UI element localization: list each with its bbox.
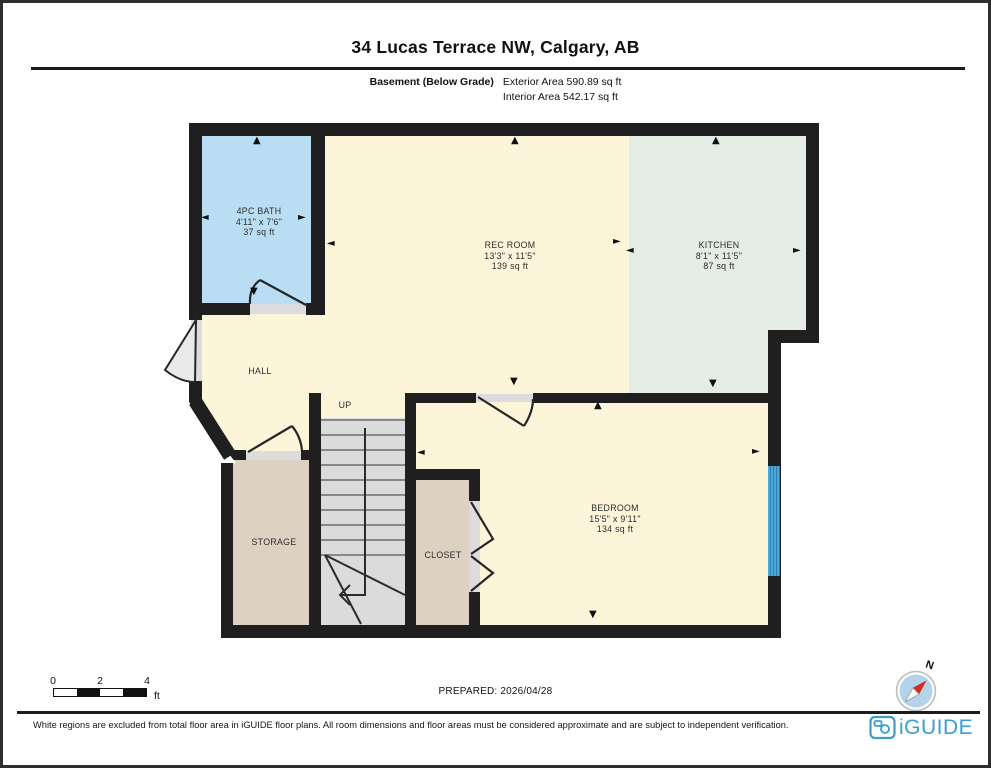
bedroom-name: BEDROOM [555, 503, 675, 514]
area-summary: Exterior Area 590.89 sq ft Interior Area… [503, 75, 621, 105]
rec-right-arrow-icon: ► [613, 237, 621, 247]
compass-rose: N [891, 655, 945, 715]
wall-left-stub [189, 381, 202, 407]
kitchen-bottom-arrow-icon: ▼ [709, 379, 717, 389]
stairs-fill [321, 418, 405, 625]
hall-label: HALL [220, 366, 300, 377]
floor-plan-page: 34 Lucas Terrace NW, Calgary, AB Basemen… [0, 0, 991, 768]
bedroom-area: 134 sq ft [555, 524, 675, 535]
kitchen-fill-lower [629, 332, 768, 395]
wall-closet-right-upper [469, 469, 480, 501]
hall-fill [202, 305, 325, 451]
wall-storage-left [221, 450, 233, 638]
bedroom-door-sill [476, 394, 533, 402]
bath-area: 37 sq ft [199, 227, 319, 238]
exterior-area: Exterior Area 590.89 sq ft [503, 75, 621, 90]
wall-storage-top-right [301, 450, 321, 460]
bedroom-window [768, 466, 780, 576]
footer-divider [17, 711, 980, 714]
iguide-logo-icon [869, 715, 896, 740]
wall-kitchen-right [806, 123, 819, 343]
compass-north-label: N [924, 659, 935, 673]
bedroom-dims: 15'5" x 9'11" [555, 514, 675, 525]
prepared-date: PREPARED: 2026/04/28 [3, 686, 988, 697]
rec-room-area: 139 sq ft [450, 261, 570, 272]
brand-logo: iGUIDE [869, 715, 973, 740]
footer-disclaimer: White regions are excluded from total fl… [33, 720, 823, 730]
up-label: UP [325, 400, 365, 411]
closet-opening-sill [469, 501, 480, 592]
wall-bath-bottom-right [306, 303, 325, 315]
wall-stair-left [309, 393, 321, 625]
wall-bottom [221, 625, 781, 638]
wall-bedroom-top-right [533, 393, 781, 403]
exterior-door-sill [191, 320, 202, 381]
floor-label: Basement (Below Grade) [370, 75, 494, 90]
bedroom-top-arrow-icon: ▲ [594, 401, 602, 411]
bath-left-arrow-icon: ◄ [201, 213, 209, 223]
wall-bedroom-top-left [410, 393, 476, 403]
kitchen-dims: 8'1" x 11'5" [659, 251, 779, 262]
brand-name: iGUIDE [899, 716, 973, 740]
rec-top-arrow-icon: ▲ [511, 136, 519, 146]
bath-door-arrow-icon: ▼ [250, 287, 258, 297]
closet-label: CLOSET [403, 550, 483, 561]
kitchen-name: KITCHEN [659, 240, 779, 251]
interior-area: Interior Area 542.17 sq ft [503, 90, 621, 105]
wall-stair-right [405, 393, 416, 625]
page-title: 34 Lucas Terrace NW, Calgary, AB [3, 37, 988, 58]
wall-closet-right-lower [469, 592, 480, 638]
wall-top [189, 123, 819, 136]
bedroom-left-arrow-icon: ◄ [417, 448, 425, 458]
bath-top-arrow-icon: ▲ [253, 136, 261, 146]
bedroom-right-arrow-icon: ► [752, 447, 760, 457]
rec-room-label: REC ROOM 13'3" x 11'5" 139 sq ft [450, 240, 570, 272]
rec-room-dims: 13'3" x 11'5" [450, 251, 570, 262]
bath-right-arrow-icon: ► [298, 213, 306, 223]
storage-door-sill [246, 451, 301, 460]
wall-bath-bottom-left [189, 303, 250, 315]
floor-summary: Basement (Below Grade) Exterior Area 590… [3, 75, 988, 105]
bedroom-label: BEDROOM 15'5" x 9'11" 134 sq ft [555, 503, 675, 535]
title-divider [31, 67, 965, 70]
bath-door-sill [250, 304, 306, 314]
storage-label: STORAGE [234, 537, 314, 548]
kitchen-left-arrow-icon: ◄ [626, 246, 634, 256]
kitchen-fill-upper [629, 136, 806, 332]
kitchen-top-arrow-icon: ▲ [712, 136, 720, 146]
kitchen-area: 87 sq ft [659, 261, 779, 272]
rec-room-name: REC ROOM [450, 240, 570, 251]
kitchen-label: KITCHEN 8'1" x 11'5" 87 sq ft [659, 240, 779, 272]
bedroom-bottom-arrow-icon: ▼ [589, 610, 597, 620]
rec-bottom-arrow-icon: ▼ [510, 377, 518, 387]
kitchen-right-arrow-icon: ► [793, 246, 801, 256]
rec-left-arrow-icon: ◄ [327, 239, 335, 249]
wall-storage-top-left [221, 450, 246, 460]
